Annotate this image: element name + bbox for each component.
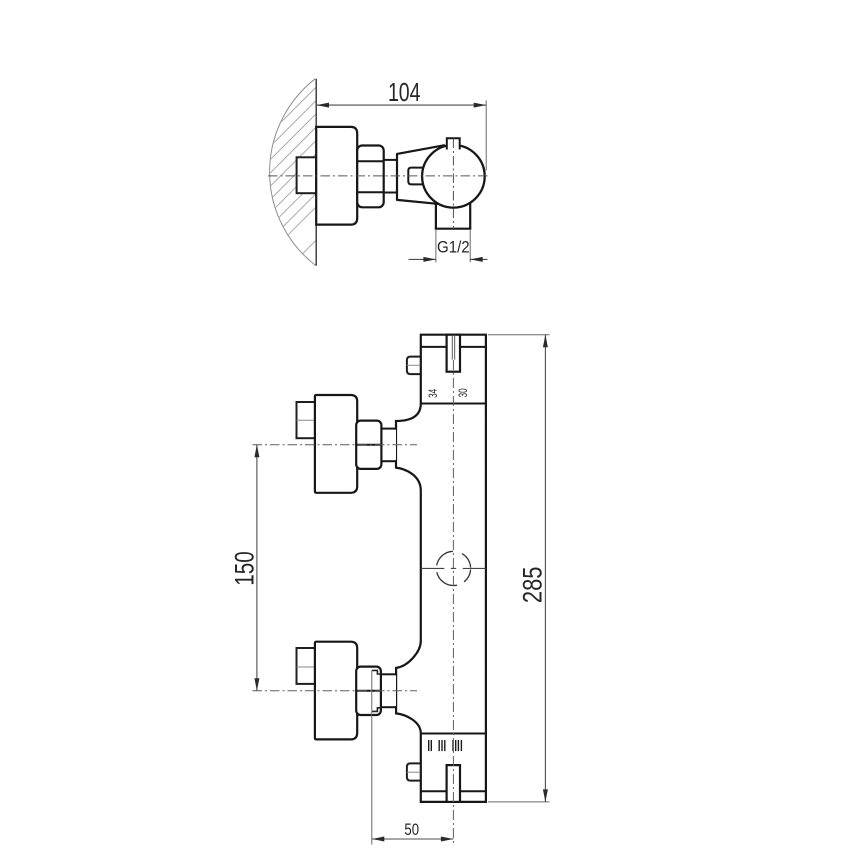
svg-text:104: 104 (388, 77, 421, 106)
svg-text:30: 30 (458, 388, 471, 397)
svg-text:34: 34 (428, 389, 441, 398)
svg-text:50: 50 (404, 821, 419, 840)
svg-text:G1/2: G1/2 (437, 238, 470, 257)
svg-text:285: 285 (519, 566, 548, 603)
svg-text:150: 150 (230, 551, 260, 585)
